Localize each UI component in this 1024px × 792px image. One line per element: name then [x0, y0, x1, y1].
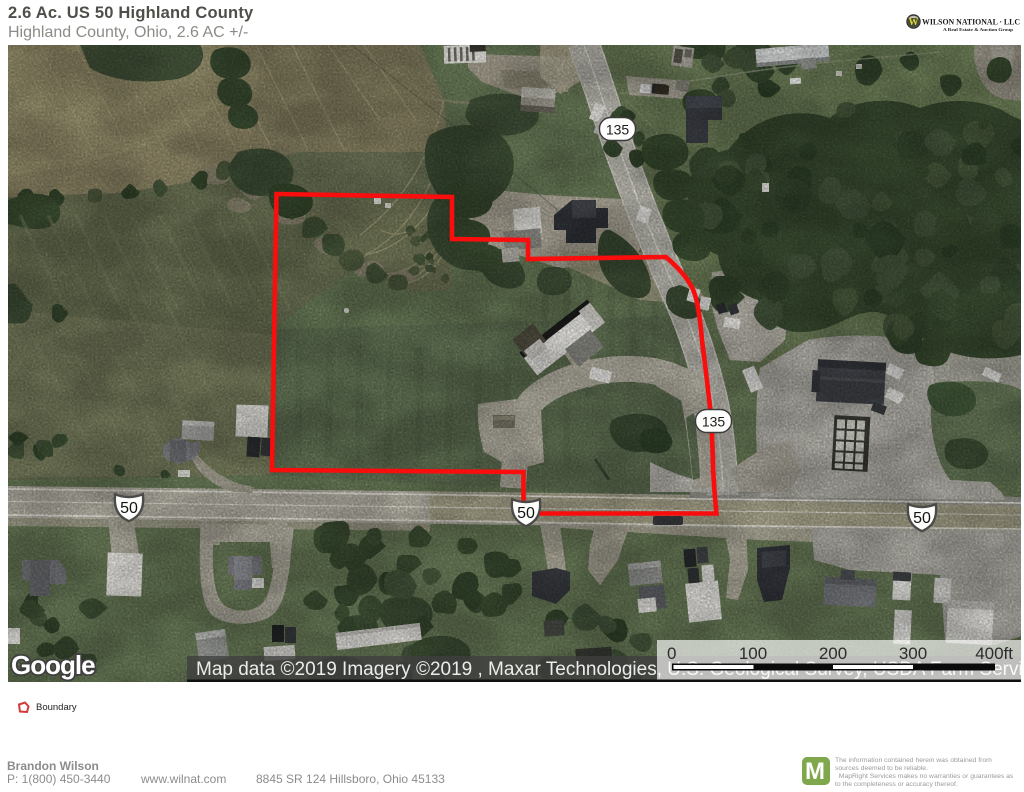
svg-text:Google: Google — [11, 650, 95, 680]
svg-text:300: 300 — [899, 644, 927, 663]
svg-text:50: 50 — [913, 510, 931, 527]
svg-text:100: 100 — [739, 644, 767, 663]
svg-text:200: 200 — [819, 644, 847, 663]
svg-text:A Real Estate & Auction Group: A Real Estate & Auction Group — [943, 28, 1013, 32]
svg-text:400ft: 400ft — [975, 644, 1013, 663]
svg-text:W: W — [909, 17, 919, 28]
svg-text:135: 135 — [606, 122, 630, 138]
svg-text:50: 50 — [120, 500, 138, 517]
svg-text:WILSON NATIONAL · LLC: WILSON NATIONAL · LLC — [922, 17, 1020, 27]
svg-text:135: 135 — [702, 414, 726, 430]
svg-text:0: 0 — [667, 644, 676, 663]
svg-text:50: 50 — [517, 505, 535, 522]
